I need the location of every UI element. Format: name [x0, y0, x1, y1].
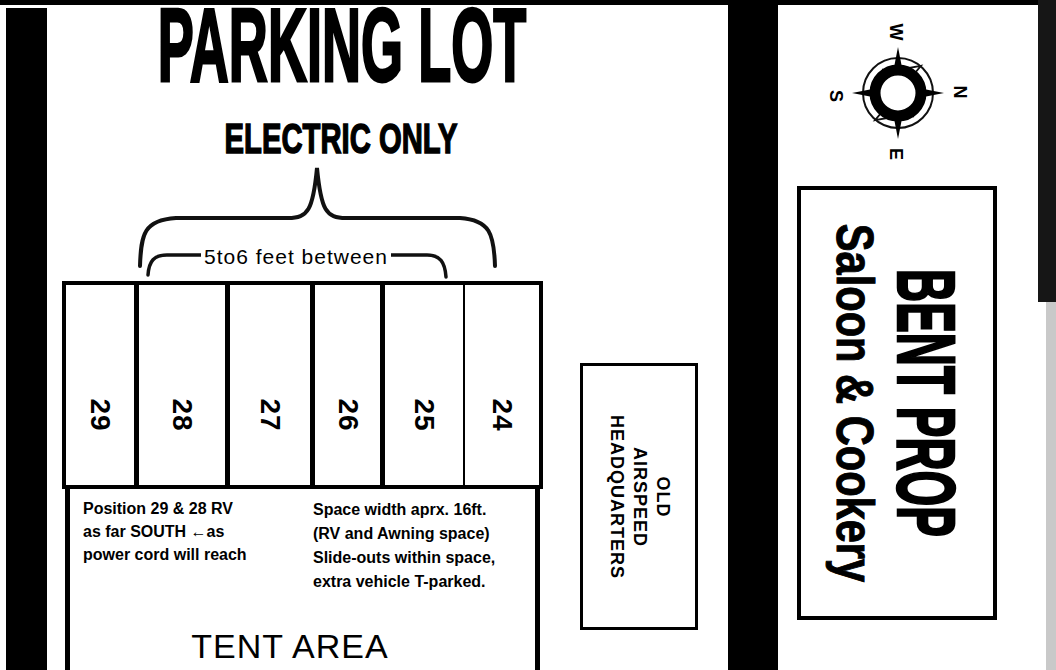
note-line: Position 29 & 28 RV	[83, 497, 247, 520]
parking-lot-box: 29 28 27 26 25 24	[62, 281, 543, 489]
right-edge-shadow	[1046, 302, 1056, 670]
compass-letter-left: S	[826, 90, 846, 102]
old-hq-label: OLD AIRSPEED HEADQUARTERS	[605, 367, 674, 627]
saloon-subtitle: Saloon & Cookery	[826, 212, 884, 595]
space-width-note: Space width aprx. 16ft. (RV and Awning s…	[313, 498, 495, 594]
bracket-right-hook-icon	[391, 249, 449, 279]
saloon-label: BENT PROP Saloon & Cookery	[826, 164, 968, 642]
bracket-left-hook-icon	[145, 249, 201, 277]
compass-rose-icon: W N E S	[826, 14, 970, 172]
space-number: 27	[254, 398, 286, 431]
power-cord-note: Position 29 & 28 RV as far SOUTH ←as pow…	[83, 497, 247, 566]
space-number: 25	[408, 398, 440, 431]
note-line: as far SOUTH ←as	[83, 520, 247, 543]
compass-letter-top: W	[886, 24, 906, 41]
note-line: extra vehicle T-parked.	[313, 570, 495, 594]
space-number: 26	[332, 398, 364, 431]
tent-area-box: Position 29 & 28 RV as far SOUTH ←as pow…	[65, 489, 540, 670]
old-hq-line: OLD	[651, 367, 674, 627]
compass-letter-bottom: E	[886, 148, 906, 160]
note-line: power cord will reach	[83, 543, 247, 566]
parking-space-28: 28	[139, 285, 230, 485]
parking-space-25: 25	[385, 285, 465, 485]
space-number: 24	[486, 398, 518, 431]
old-hq-box: OLD AIRSPEED HEADQUARTERS	[580, 363, 698, 630]
space-number: 28	[166, 398, 198, 431]
page-subtitle-text: ELECTRIC ONLY	[225, 114, 458, 163]
spacing-bracket: 5to6 feet between	[145, 242, 449, 279]
parking-space-27: 27	[230, 285, 315, 485]
saloon-box: BENT PROP Saloon & Cookery	[797, 186, 997, 620]
space-number: 29	[84, 398, 116, 431]
left-road-bar	[6, 8, 47, 670]
saloon-title: BENT PROP	[884, 269, 968, 537]
page-subtitle: ELECTRIC ONLY	[341, 114, 683, 163]
note-line: Space width aprx. 16ft.	[313, 498, 495, 522]
old-hq-line: HEADQUARTERS	[605, 367, 628, 627]
spacing-note: 5to6 feet between	[204, 244, 388, 270]
note-line: (RV and Awning space)	[313, 522, 495, 546]
note-line: Slide-outs within space,	[313, 546, 495, 570]
old-hq-line: AIRSPEED	[628, 367, 651, 627]
tent-area-label: TENT AREA	[70, 627, 510, 666]
page-title-text: PARKING LOT	[158, 0, 527, 105]
compass-letter-right: N	[950, 86, 970, 99]
parking-space-29: 29	[66, 285, 139, 485]
parking-lot-map: PARKING LOT ELECTRIC ONLY 5to6 feet betw…	[0, 0, 1056, 670]
parking-space-24: 24	[465, 285, 539, 485]
parking-space-26: 26	[315, 285, 385, 485]
